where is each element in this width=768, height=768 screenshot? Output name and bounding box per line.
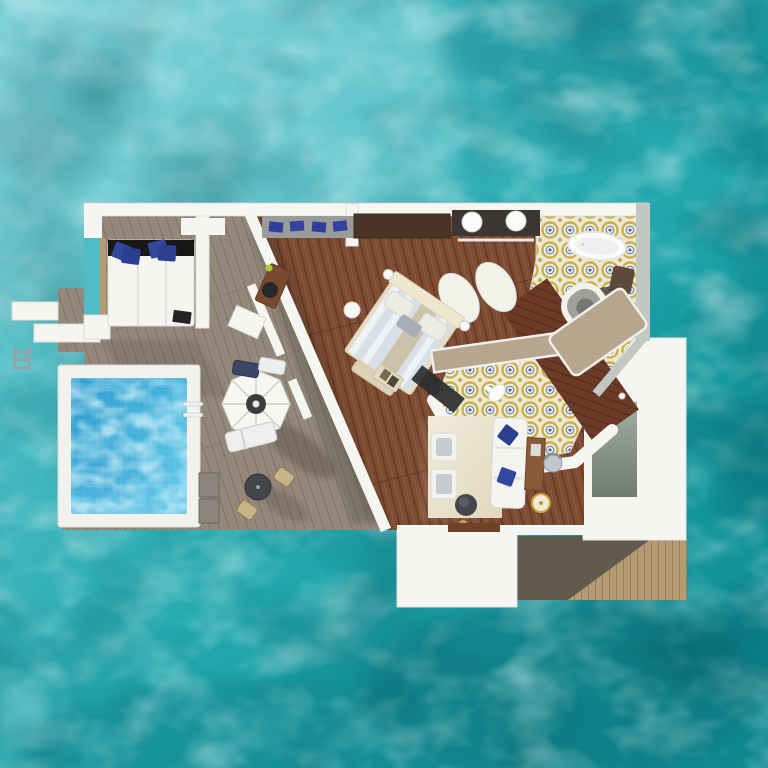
- lower-white-deck: [397, 528, 517, 607]
- folded-towels: [333, 220, 348, 231]
- bamboo-screen: [100, 238, 106, 316]
- daybed-pillow: [121, 247, 141, 265]
- folded-towels: [312, 221, 327, 232]
- bistro-table-center: [256, 485, 260, 489]
- writing-console: [525, 438, 546, 491]
- armchair-cushion: [436, 438, 452, 456]
- daybed-pavilion: [108, 239, 194, 326]
- wardrobe-counter: [354, 214, 450, 238]
- sea-gap-under-villa: [84, 238, 102, 316]
- desk-pad: [530, 444, 541, 457]
- deck-mat: [199, 499, 219, 523]
- pavilion-west-wall: [84, 205, 102, 238]
- deck-mat: [199, 473, 219, 497]
- parasol-hub: [253, 401, 260, 408]
- pouf-highlight: [459, 497, 469, 507]
- desk-lamp: [266, 265, 273, 272]
- desk-chair: [544, 454, 562, 472]
- sea-ledge-upper: [12, 302, 58, 320]
- daybed-pillow: [157, 244, 176, 261]
- sideboard: [448, 523, 500, 532]
- serving-tray: [172, 310, 191, 324]
- folded-towels: [269, 221, 284, 232]
- sofa: [490, 417, 527, 508]
- scene-canvas: [0, 0, 768, 768]
- desk-chair-dark: [262, 282, 278, 298]
- armchair: [431, 433, 457, 461]
- plunge-pool: [58, 365, 203, 527]
- tray-table-center: [539, 501, 543, 505]
- pavilion-top-shelf-wall: [181, 218, 225, 235]
- armchair-cushion: [436, 474, 452, 494]
- pavilion-corner-bench: [84, 315, 110, 339]
- entry-closet: [262, 214, 450, 238]
- overwater-villa-aerial-view: [0, 0, 768, 768]
- double-vanity: [452, 210, 540, 240]
- washbasin: [506, 211, 526, 231]
- side-table: [344, 302, 360, 318]
- armchair: [431, 469, 457, 499]
- folded-towels: [290, 221, 305, 232]
- washbasin: [462, 212, 482, 232]
- shower-control: [619, 393, 625, 399]
- pool-water-texture: [71, 378, 187, 514]
